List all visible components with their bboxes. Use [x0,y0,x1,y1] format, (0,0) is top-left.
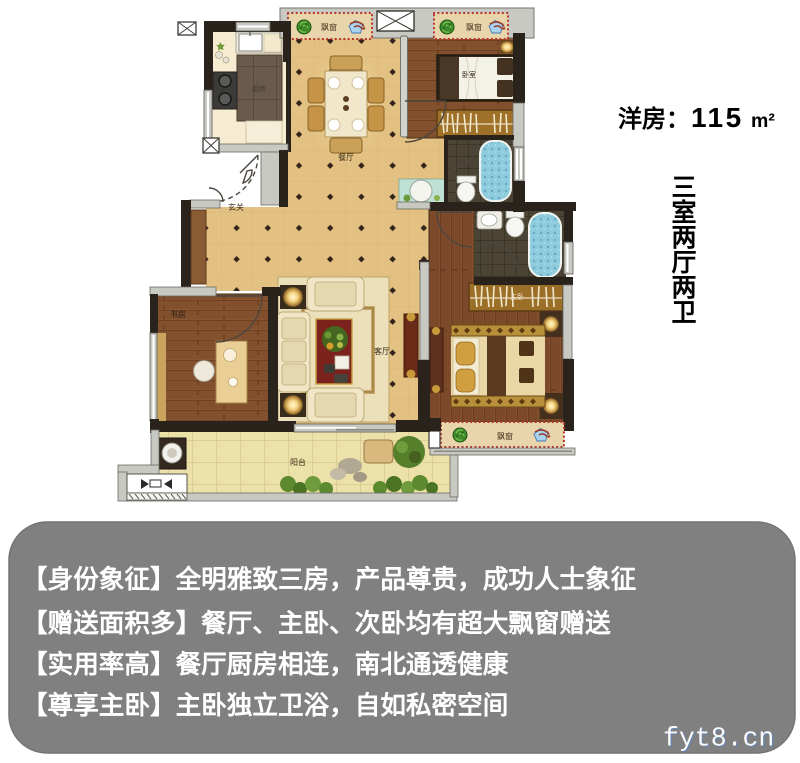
svg-text:客厅: 客厅 [374,346,390,356]
svg-text:书房: 书房 [170,309,186,319]
svg-text:厨房: 厨房 [252,84,266,93]
svg-text:m²: m² [751,110,775,132]
svg-text:飘窗: 飘窗 [497,431,513,441]
svg-text:厅: 厅 [671,249,696,277]
svg-text:两: 两 [671,274,696,302]
svg-text:飘窗: 飘窗 [321,22,337,32]
svg-text:两: 两 [671,224,696,252]
svg-text:三: 三 [671,174,696,202]
svg-text:飘窗: 飘窗 [466,22,482,32]
svg-text:主卧: 主卧 [510,292,524,301]
svg-text:洋房：: 洋房： [618,105,690,133]
svg-text:【尊享主卧】主卧独立卫浴，自如私密空间: 【尊享主卧】主卧独立卫浴，自如私密空间 [22,690,508,720]
svg-text:阳台: 阳台 [290,457,306,467]
svg-text:【身份象征】全明雅致三房，产品尊贵，成功人士象征: 【身份象征】全明雅致三房，产品尊贵，成功人士象征 [22,564,637,594]
svg-text:【实用率高】餐厅厨房相连，南北通透健康: 【实用率高】餐厅厨房相连，南北通透健康 [22,649,509,679]
svg-text:【赠送面积多】餐厅、主卧、次卧均有超大飘窗赠送: 【赠送面积多】餐厅、主卧、次卧均有超大飘窗赠送 [22,608,611,638]
svg-text:玄关: 玄关 [228,202,244,212]
svg-text:卧室: 卧室 [462,70,476,79]
svg-text:室: 室 [671,198,696,227]
svg-text:115: 115 [691,102,744,133]
svg-text:餐厅: 餐厅 [338,153,354,162]
svg-text:fyt8.cn: fyt8.cn [663,724,774,754]
svg-text:卫: 卫 [671,299,696,327]
